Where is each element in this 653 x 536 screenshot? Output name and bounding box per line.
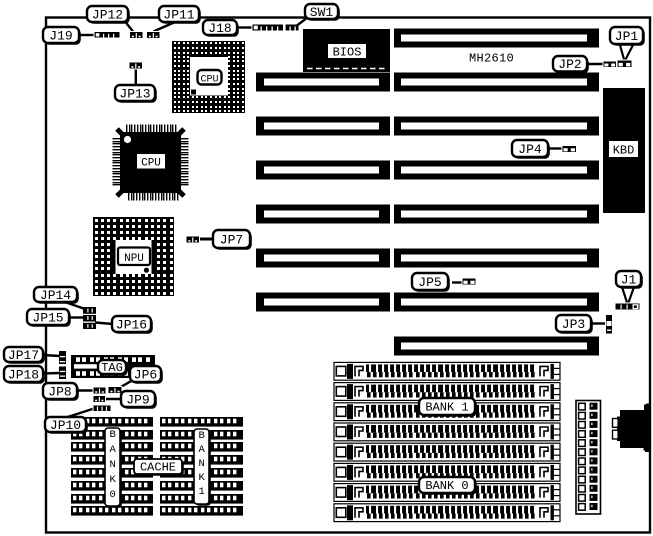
- svg-text:J18: J18: [208, 21, 231, 36]
- svg-text:CPU: CPU: [141, 158, 161, 170]
- svg-text:BANK 0: BANK 0: [425, 479, 468, 493]
- svg-text:BIOS: BIOS: [333, 46, 362, 60]
- svg-text:KBD: KBD: [613, 144, 635, 158]
- svg-text:TAG: TAG: [101, 361, 123, 375]
- svg-text:A: A: [110, 444, 117, 456]
- svg-text:JP10: JP10: [50, 418, 81, 433]
- svg-text:JP12: JP12: [92, 7, 123, 22]
- svg-text:CACHE: CACHE: [140, 461, 176, 475]
- svg-text:SW1: SW1: [310, 5, 334, 20]
- svg-text:JP15: JP15: [32, 310, 63, 325]
- svg-text:N: N: [199, 458, 205, 470]
- svg-text:B: B: [110, 429, 116, 441]
- svg-text:JP1: JP1: [615, 29, 639, 44]
- svg-text:JP5: JP5: [418, 275, 441, 290]
- svg-text:JP18: JP18: [8, 367, 39, 382]
- svg-text:K: K: [199, 472, 206, 484]
- svg-text:MH2610: MH2610: [469, 52, 514, 66]
- svg-text:A: A: [199, 444, 206, 456]
- svg-text:JP6: JP6: [134, 367, 157, 382]
- svg-text:JP8: JP8: [48, 384, 71, 399]
- svg-text:JP11: JP11: [163, 7, 194, 22]
- svg-text:JP4: JP4: [518, 142, 542, 157]
- svg-text:JP3: JP3: [562, 317, 585, 332]
- svg-text:CPU: CPU: [200, 75, 218, 86]
- svg-text:JP2: JP2: [558, 57, 581, 72]
- svg-text:B: B: [199, 430, 205, 442]
- svg-text:JP14: JP14: [40, 288, 71, 303]
- svg-text:N: N: [110, 459, 116, 471]
- svg-text:JP9: JP9: [126, 392, 149, 407]
- svg-text:JP7: JP7: [220, 232, 243, 247]
- svg-text:JP17: JP17: [8, 348, 39, 363]
- svg-text:J19: J19: [49, 28, 72, 43]
- svg-text:J1: J1: [621, 272, 637, 287]
- svg-text:BANK 1: BANK 1: [425, 401, 468, 415]
- svg-text:JP16: JP16: [116, 317, 147, 332]
- svg-text:NPU: NPU: [124, 253, 144, 265]
- svg-text:K: K: [110, 474, 117, 486]
- svg-text:0: 0: [110, 489, 116, 501]
- svg-text:JP13: JP13: [119, 86, 150, 101]
- svg-text:1: 1: [199, 486, 205, 498]
